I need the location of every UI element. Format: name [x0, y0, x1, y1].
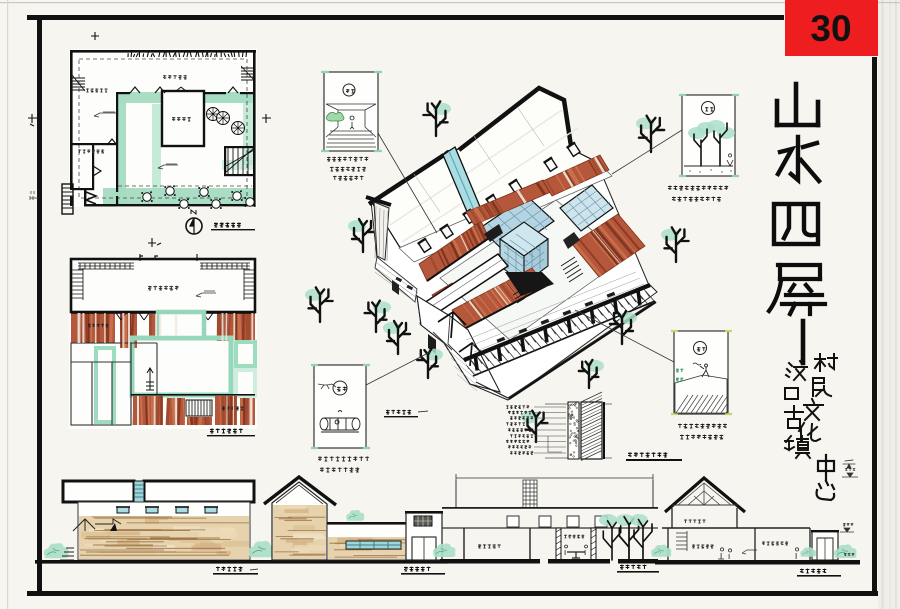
svg-text:30: 30 — [810, 8, 851, 49]
